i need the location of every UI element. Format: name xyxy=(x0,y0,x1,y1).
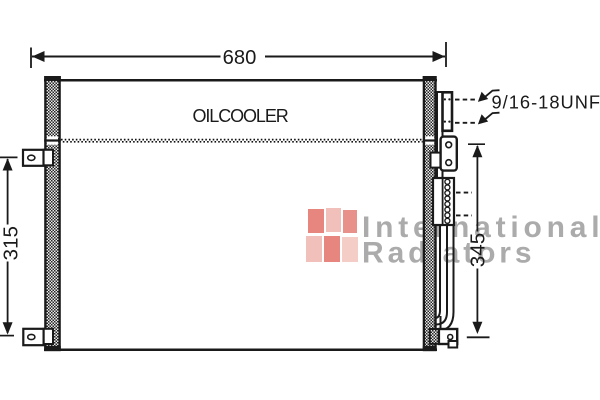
svg-text:Radiators: Radiators xyxy=(362,236,535,269)
svg-text:9/16-18UNF: 9/16-18UNF xyxy=(492,91,600,112)
svg-text:OILCOOLER: OILCOOLER xyxy=(193,106,289,126)
svg-text:315: 315 xyxy=(0,226,23,261)
svg-text:345: 345 xyxy=(467,233,490,268)
svg-text:680: 680 xyxy=(223,47,257,69)
